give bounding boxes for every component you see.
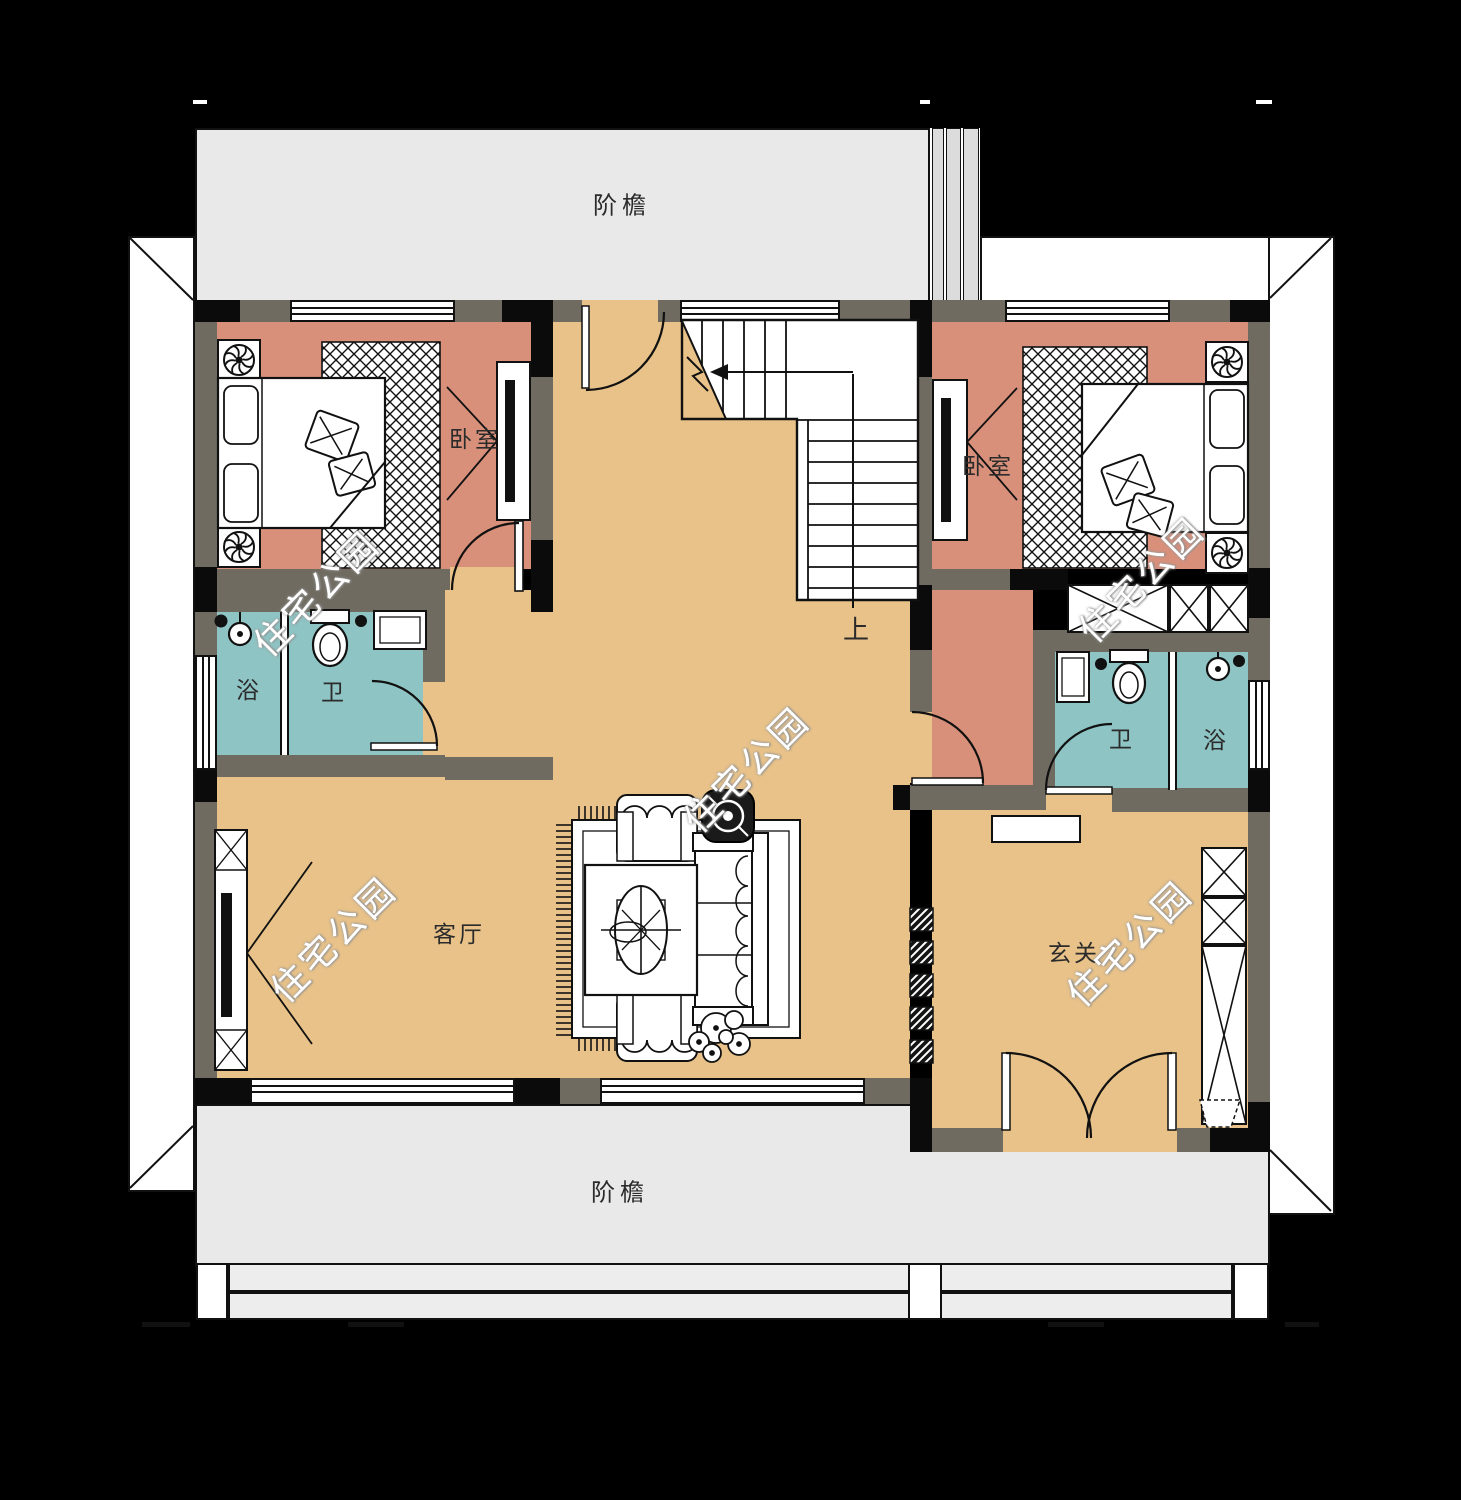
label-stairs-up: 上: [843, 610, 869, 647]
door-arc: [1046, 724, 1112, 790]
partition-screen: [910, 908, 933, 1063]
bench: [992, 816, 1080, 842]
pillow: [224, 464, 258, 522]
staircase: [682, 320, 918, 608]
label-wc-right: 卫: [1109, 720, 1135, 754]
pillow: [224, 386, 258, 444]
label-bedroom-left: 卧室: [449, 420, 501, 454]
door-arc: [1006, 1053, 1091, 1138]
rug-fringe: [575, 806, 619, 819]
lamp-icon: [1212, 538, 1242, 568]
door-arc: [586, 312, 664, 390]
door-arc: [1087, 1053, 1172, 1138]
door-leaf: [371, 743, 437, 750]
door-leaf: [1002, 1053, 1010, 1130]
lamp-icon: [224, 532, 254, 562]
sofa: [693, 833, 768, 1025]
clipped-dimension-mark: [142, 1322, 190, 1327]
door-leaf: [1046, 787, 1112, 794]
bedroom-right-furniture: [912, 342, 1248, 785]
rug-fringe: [575, 1038, 619, 1051]
label-bedroom-right: 卧室: [962, 447, 1014, 481]
clipped-dimension-mark: [1256, 100, 1272, 104]
door-leaf: [1168, 1053, 1176, 1130]
label-living: 客厅: [433, 915, 485, 949]
pillow: [1210, 466, 1244, 524]
door-leaf: [912, 778, 983, 785]
label-porch-top: 阶檐: [593, 186, 651, 221]
drain-icon: [1095, 658, 1107, 670]
toilet-icon: [313, 624, 347, 666]
coffee-table: [585, 865, 697, 995]
toilet-tank: [1110, 650, 1148, 662]
hall-top-door: [582, 306, 664, 390]
rug-fringe: [556, 822, 571, 1037]
door-arc: [452, 523, 519, 590]
clipped-dimension-mark: [348, 1322, 404, 1327]
lamp-icon: [224, 345, 254, 375]
door-arc: [912, 712, 983, 783]
label-bath-right: 浴: [1203, 721, 1229, 755]
sofa-set: [556, 790, 800, 1062]
armchair: [617, 995, 697, 1061]
door-leaf: [582, 306, 589, 388]
label-wc-left: 卫: [321, 673, 347, 707]
floor-plan: 阶檐 卧室 卧室 浴 卫 卫 浴 客厅 玄关 上 阶檐 住宅公园 住宅公园 住宅…: [0, 0, 1461, 1500]
drain-icon: [215, 615, 228, 628]
clipped-dimension-mark: [1285, 1322, 1319, 1327]
clipped-dimension-mark: [193, 100, 207, 104]
door-leaf: [515, 521, 523, 591]
clipped-dimension-mark: [1048, 1322, 1104, 1327]
drain-icon: [355, 615, 367, 627]
door-arc: [372, 681, 437, 746]
tv: [221, 893, 232, 1017]
label-porch-bottom: 阶檐: [591, 1173, 649, 1208]
pillow: [1210, 390, 1244, 448]
lamp-icon: [1212, 347, 1242, 377]
toilet-icon: [1113, 663, 1145, 703]
clipped-dimension-mark: [920, 100, 930, 104]
drain-icon: [1233, 655, 1245, 667]
label-bath-left: 浴: [236, 671, 262, 705]
